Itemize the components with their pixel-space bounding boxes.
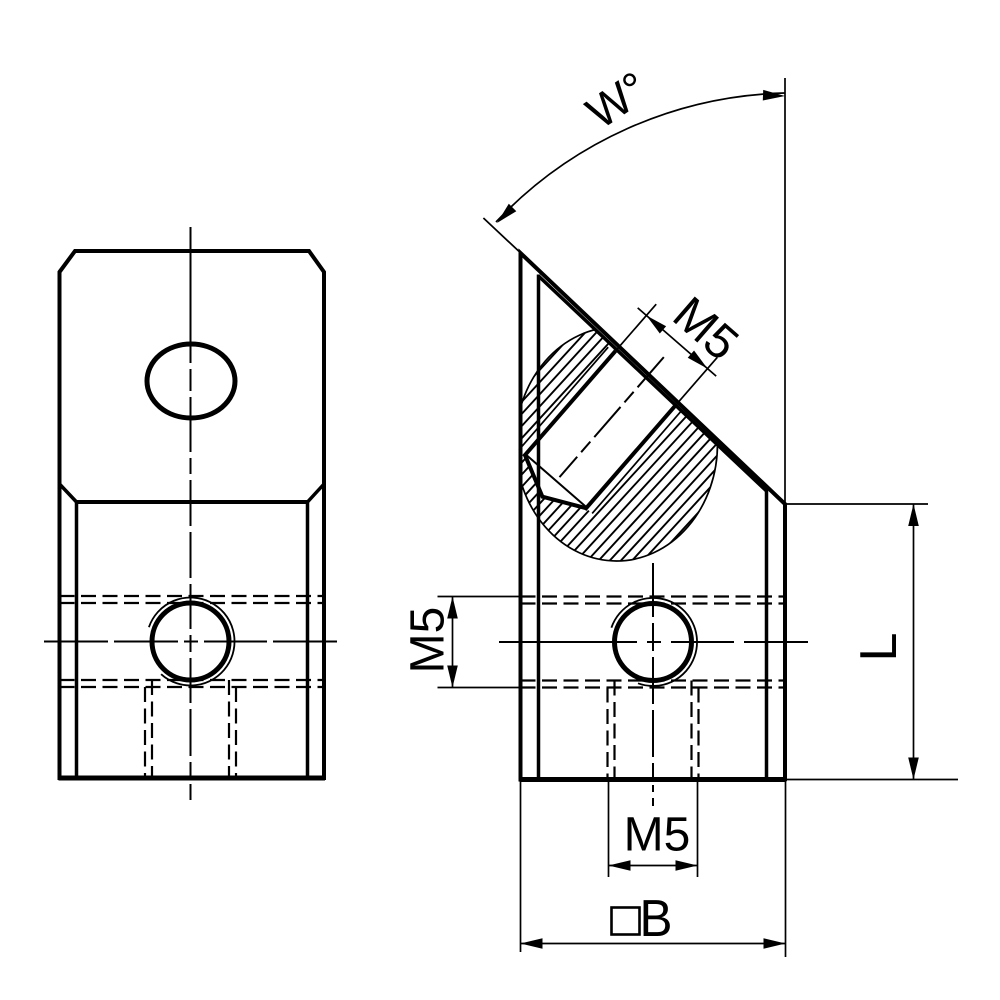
svg-text:L: L xyxy=(850,633,908,662)
svg-text:M5: M5 xyxy=(402,607,455,674)
svg-text:M5: M5 xyxy=(624,809,691,862)
svg-text:M5: M5 xyxy=(663,287,748,371)
svg-text:B: B xyxy=(640,890,673,948)
svg-text:W°: W° xyxy=(577,61,657,139)
